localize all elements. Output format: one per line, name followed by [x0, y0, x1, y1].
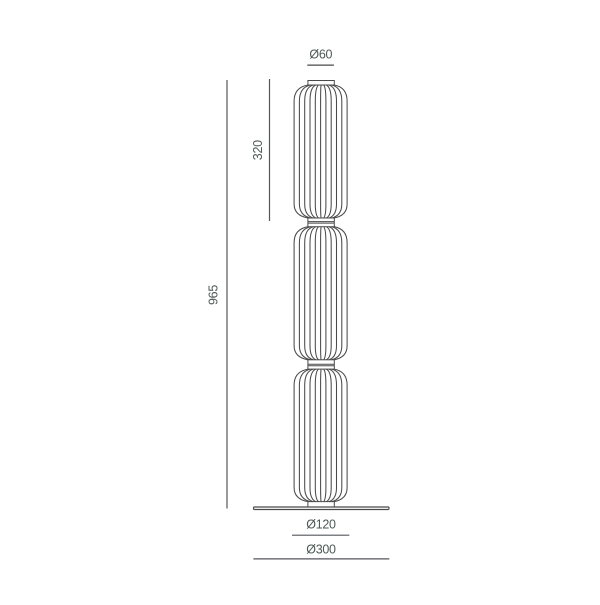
svg-text:965: 965	[206, 285, 220, 305]
svg-text:Ø120: Ø120	[306, 518, 336, 532]
svg-text:Ø300: Ø300	[306, 543, 336, 557]
svg-text:Ø60: Ø60	[309, 47, 332, 61]
svg-text:320: 320	[251, 140, 265, 160]
